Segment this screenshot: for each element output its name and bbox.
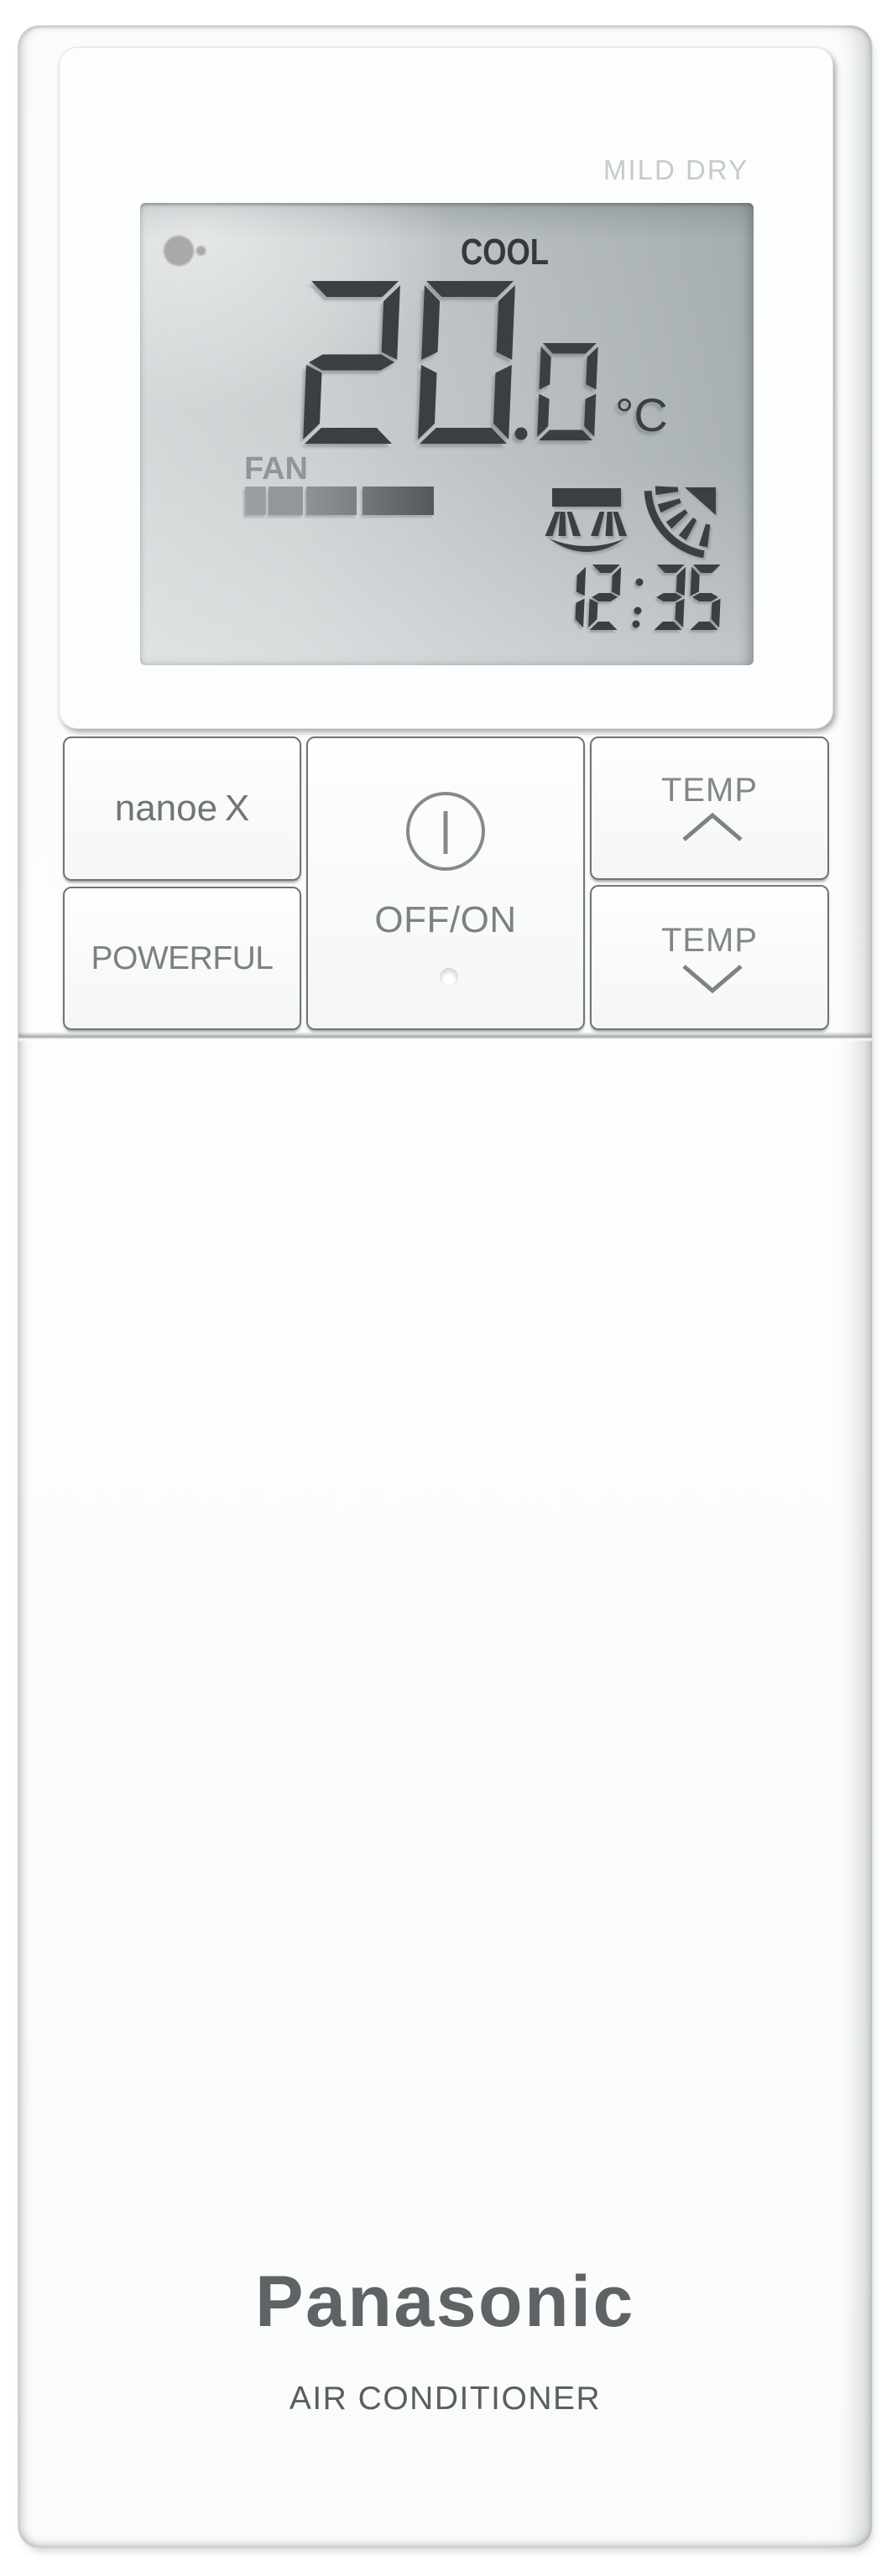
- svg-text:°C: °C: [615, 388, 668, 441]
- svg-text:FAN: FAN: [244, 451, 308, 487]
- svg-text:COOL: COOL: [461, 232, 549, 273]
